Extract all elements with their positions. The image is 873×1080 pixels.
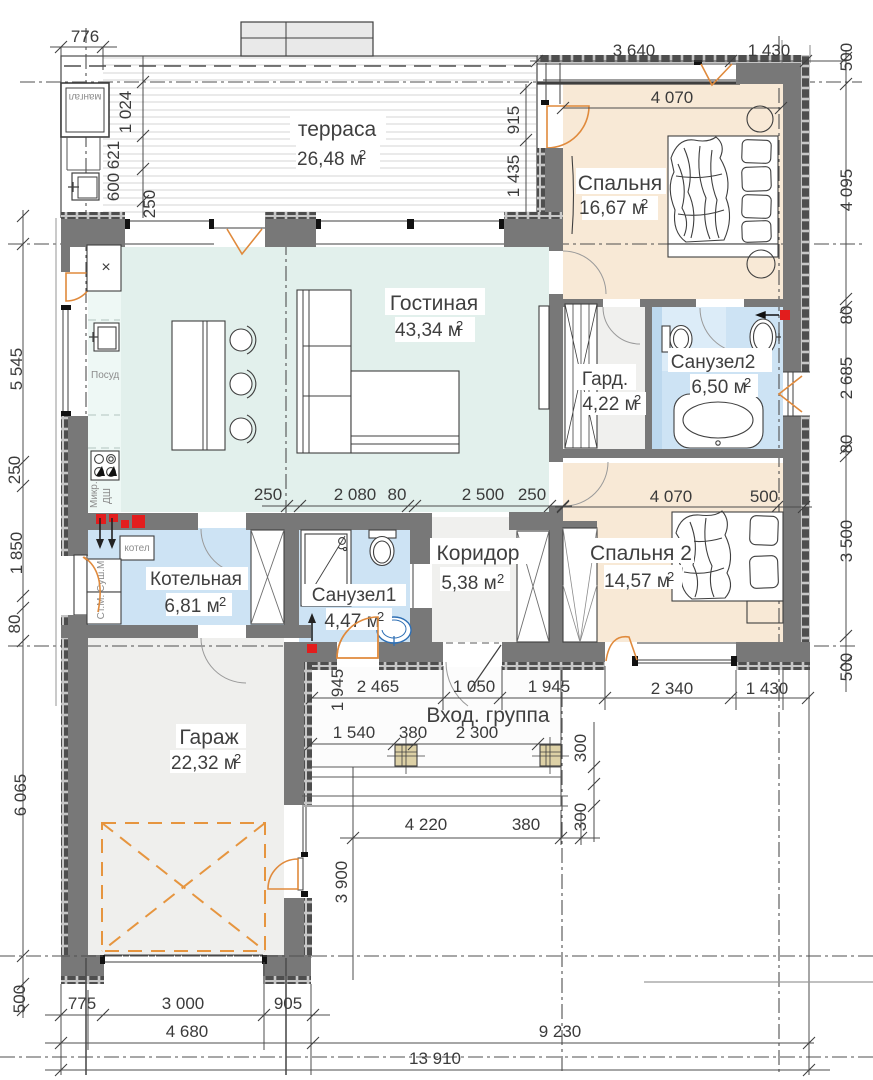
svg-text:3 640: 3 640	[613, 41, 656, 60]
svg-text:775: 775	[68, 994, 96, 1013]
svg-text:80: 80	[5, 615, 24, 634]
svg-text:380: 380	[512, 815, 540, 834]
svg-text:Коридор: Коридор	[437, 542, 520, 565]
svg-text:14,57 м: 14,57 м	[604, 571, 670, 592]
svg-text:2: 2	[234, 751, 241, 766]
svg-text:2 500: 2 500	[462, 485, 505, 504]
svg-text:621: 621	[104, 141, 123, 169]
svg-text:Посуд: Посуд	[91, 370, 119, 381]
svg-text:2: 2	[634, 392, 641, 407]
svg-text:80: 80	[837, 306, 856, 325]
svg-text:Спальня 2: Спальня 2	[590, 542, 692, 565]
svg-text:905: 905	[274, 994, 302, 1013]
svg-text:2 685: 2 685	[837, 357, 856, 400]
svg-text:2 080: 2 080	[334, 485, 377, 504]
svg-text:2 300: 2 300	[456, 723, 499, 742]
svg-text:Гард.: Гард.	[582, 369, 628, 390]
svg-text:2 340: 2 340	[651, 679, 694, 698]
svg-text:2: 2	[456, 318, 463, 333]
svg-text:2: 2	[359, 147, 366, 162]
svg-text:Санузел1: Санузел1	[312, 585, 397, 606]
svg-text:600: 600	[104, 173, 123, 201]
svg-text:4 220: 4 220	[405, 815, 448, 834]
svg-text:2 465: 2 465	[357, 677, 400, 696]
svg-text:3 000: 3 000	[162, 994, 205, 1013]
svg-text:2: 2	[744, 375, 751, 390]
svg-text:2: 2	[641, 196, 648, 211]
svg-text:терраса: терраса	[298, 118, 377, 141]
svg-text:380: 380	[399, 723, 427, 742]
svg-text:16,67 м: 16,67 м	[579, 198, 645, 219]
svg-text:1 435: 1 435	[504, 155, 523, 198]
svg-text:500: 500	[10, 985, 29, 1013]
svg-text:1 050: 1 050	[453, 677, 496, 696]
svg-text:1 024: 1 024	[116, 91, 135, 134]
svg-text:1 945: 1 945	[528, 677, 571, 696]
svg-text:3 900: 3 900	[332, 861, 351, 904]
svg-text:Санузел2: Санузел2	[671, 352, 756, 373]
svg-text:6,81 м: 6,81 м	[164, 596, 219, 617]
svg-text:5 545: 5 545	[7, 348, 26, 391]
svg-text:4 680: 4 680	[166, 1022, 209, 1041]
svg-text:6 065: 6 065	[11, 774, 30, 817]
svg-text:9 230: 9 230	[539, 1022, 582, 1041]
svg-text:2: 2	[219, 594, 226, 609]
svg-text:80: 80	[388, 485, 407, 504]
svg-text:ДШ: ДШ	[102, 488, 113, 504]
svg-text:Спальня: Спальня	[578, 172, 662, 195]
svg-text:2: 2	[497, 571, 504, 586]
svg-text:5,38 м: 5,38 м	[441, 573, 496, 594]
svg-text:4 070: 4 070	[650, 487, 693, 506]
svg-text:776: 776	[71, 27, 99, 46]
svg-text:26,48 м: 26,48 м	[297, 149, 363, 170]
svg-text:43,34 м: 43,34 м	[395, 320, 461, 341]
svg-text:Гараж: Гараж	[179, 726, 238, 749]
svg-text:250: 250	[254, 485, 282, 504]
svg-text:Микр.: Микр.	[89, 481, 100, 508]
svg-text:80: 80	[837, 435, 856, 454]
svg-text:2: 2	[667, 569, 674, 584]
svg-text:250: 250	[518, 485, 546, 504]
svg-text:1 945: 1 945	[328, 669, 347, 712]
svg-text:Гостиная: Гостиная	[390, 292, 478, 315]
svg-text:×: ×	[101, 259, 110, 276]
svg-text:4,47 м: 4,47 м	[324, 611, 379, 632]
svg-text:Котельная: Котельная	[150, 569, 242, 590]
svg-text:250: 250	[5, 456, 24, 484]
svg-text:6,50 м: 6,50 м	[691, 377, 746, 398]
svg-text:500: 500	[837, 43, 856, 71]
svg-text:250: 250	[140, 190, 159, 218]
svg-text:1 430: 1 430	[746, 679, 789, 698]
svg-text:4,22 м: 4,22 м	[582, 394, 637, 415]
svg-text:4 095: 4 095	[837, 169, 856, 212]
svg-text:1 540: 1 540	[333, 723, 376, 742]
svg-text:1 850: 1 850	[7, 532, 26, 575]
svg-text:3 500: 3 500	[837, 520, 856, 563]
svg-text:13 910: 13 910	[409, 1049, 461, 1068]
svg-text:500: 500	[750, 487, 778, 506]
svg-text:мангал: мангал	[68, 91, 101, 102]
svg-text:500: 500	[837, 653, 856, 681]
svg-text:22,32 м: 22,32 м	[171, 753, 237, 774]
svg-text:котел: котел	[124, 543, 150, 554]
svg-text:300: 300	[571, 734, 590, 762]
svg-text:1 430: 1 430	[748, 41, 791, 60]
svg-text:915: 915	[504, 106, 523, 134]
svg-text:4 070: 4 070	[651, 88, 694, 107]
